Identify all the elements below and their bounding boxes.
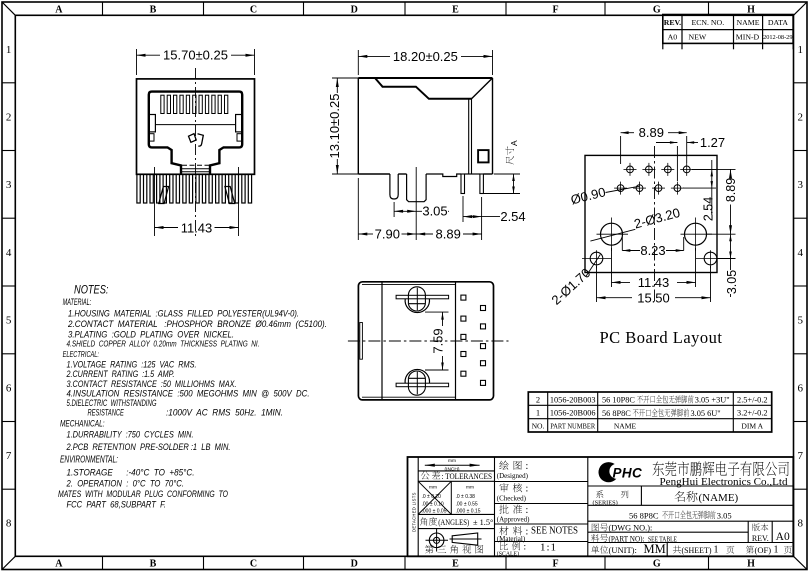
svg-text:8.89: 8.89 <box>436 226 461 241</box>
svg-text:8.89: 8.89 <box>639 125 664 140</box>
svg-text:6: 6 <box>6 382 12 394</box>
svg-text:1: 1 <box>6 44 12 56</box>
svg-text:PHC: PHC <box>613 466 643 481</box>
svg-text:(DWG NO.):: (DWG NO.): <box>609 524 653 533</box>
svg-text:± 1.5°: ± 1.5° <box>473 518 493 527</box>
svg-text:B: B <box>150 4 157 15</box>
svg-text:2.CURRENT RATING :1.5 AMP.: 2.CURRENT RATING :1.5 AMP. <box>66 369 175 379</box>
svg-text:5: 5 <box>6 315 12 327</box>
svg-text:8.23: 8.23 <box>640 243 665 258</box>
svg-text:1056-20B006: 1056-20B006 <box>550 409 596 418</box>
svg-text:PengHui Electronics Co.,Ltd: PengHui Electronics Co.,Ltd <box>660 476 789 488</box>
svg-text:2: 2 <box>797 111 803 123</box>
svg-text:DIM A: DIM A <box>741 422 763 431</box>
svg-text:NAME: NAME <box>614 422 637 431</box>
svg-text:H: H <box>747 559 755 570</box>
svg-text:3.05 6U": 3.05 6U" <box>691 409 721 418</box>
svg-text:A: A <box>55 4 63 15</box>
svg-text:2.54: 2.54 <box>500 209 525 224</box>
svg-text:2.5+/-0.2: 2.5+/-0.2 <box>737 395 768 404</box>
svg-text:2.CONTACT MATERIAL :PHOSPHO: 2.CONTACT MATERIAL :PHOSPHOR BRONZE Ø0.4… <box>67 319 327 329</box>
svg-text:4: 4 <box>6 247 12 259</box>
svg-text:F: F <box>552 4 558 15</box>
svg-text:E: E <box>452 559 459 570</box>
svg-text:ECN. NO.: ECN. NO. <box>691 18 724 27</box>
svg-text:3: 3 <box>6 179 12 191</box>
svg-text:(SCALE): (SCALE) <box>497 551 519 558</box>
svg-text:5: 5 <box>797 315 803 327</box>
svg-text:.000 ± 0.15: .000 ± 0.15 <box>456 508 481 514</box>
svg-text:(OF): (OF) <box>755 545 772 555</box>
svg-text:3.2+/-0.2: 3.2+/-0.2 <box>737 409 768 418</box>
svg-text:8.89: 8.89 <box>724 178 738 202</box>
svg-text:13.10±0.25: 13.10±0.25 <box>327 94 342 159</box>
svg-text:C: C <box>250 4 257 15</box>
svg-text:56 8P8C: 56 8P8C <box>602 409 631 418</box>
svg-text:: TOLERANCES: : TOLERANCES <box>442 472 493 481</box>
svg-text:RESISTANCE: RESISTANCE <box>88 408 124 418</box>
svg-text:3.05: 3.05 <box>422 204 447 219</box>
svg-text:F: F <box>552 559 558 570</box>
svg-text:1.DURRABILITY :750 CYCLES M: 1.DURRABILITY :750 CYCLES MIN. <box>67 430 194 440</box>
svg-text:(SERIES): (SERIES) <box>593 499 618 506</box>
svg-text::: : <box>526 484 529 495</box>
svg-text:3.PLATING :GOLD PLATING OVE: 3.PLATING :GOLD PLATING OVER NICKEL. <box>68 329 234 339</box>
svg-text:(Approved): (Approved) <box>497 516 530 524</box>
svg-text:mm: mm <box>448 459 456 464</box>
svg-text:6: 6 <box>797 382 803 394</box>
svg-text:4: 4 <box>797 247 803 259</box>
svg-text::: : <box>526 527 529 538</box>
svg-text:8: 8 <box>6 518 12 530</box>
svg-text:7: 7 <box>797 450 803 462</box>
svg-text:D: D <box>351 559 358 570</box>
svg-text:DETACHED LISTS: DETACHED LISTS <box>412 492 417 532</box>
svg-text:5.DIELECTRIC WITHSTANDING: 5.DIELECTRIC WITHSTANDING <box>67 398 157 408</box>
svg-text:ENVIRONMENTAL:: ENVIRONMENTAL: <box>60 454 118 465</box>
svg-text:(Material): (Material) <box>497 535 526 543</box>
svg-text:(SHEET): (SHEET) <box>682 545 712 555</box>
svg-text:18.20±0.25: 18.20±0.25 <box>393 49 458 64</box>
svg-text:2.PCB RETENTION PRE-SOLDER :: 2.PCB RETENTION PRE-SOLDER :1 LB MIN. <box>66 442 231 452</box>
svg-text:A: A <box>509 140 519 146</box>
svg-text:3.05: 3.05 <box>725 270 739 294</box>
svg-text:1: 1 <box>536 408 540 418</box>
svg-text:2.54: 2.54 <box>701 197 715 221</box>
svg-text:G: G <box>653 4 661 15</box>
svg-text:NO.: NO. <box>532 422 545 431</box>
svg-text:1: 1 <box>774 545 779 556</box>
svg-text:15.50: 15.50 <box>637 291 670 306</box>
svg-text:A: A <box>55 559 63 570</box>
svg-text:NEW: NEW <box>689 32 707 41</box>
svg-text:DATA: DATA <box>768 18 789 27</box>
svg-text:1.STORAGE :-40°C TO +85: 1.STORAGE :-40°C TO +85°C. <box>67 468 195 478</box>
svg-text:SEE NOTES: SEE NOTES <box>531 526 578 537</box>
svg-text:MM: MM <box>644 542 666 556</box>
svg-text:mm: mm <box>466 485 474 490</box>
svg-text::: : <box>524 543 527 553</box>
svg-text:A0: A0 <box>668 32 678 41</box>
svg-text::: : <box>526 505 529 516</box>
svg-text:3.CONTACT RESISTANCE :50 MI: 3.CONTACT RESISTANCE :50 MILLIOHMS MAX. <box>67 379 237 389</box>
svg-text:E: E <box>452 4 459 15</box>
svg-text:MECHANICAL:: MECHANICAL: <box>60 419 105 429</box>
svg-text:REV.: REV. <box>752 534 769 543</box>
svg-text:7: 7 <box>6 450 12 462</box>
svg-text:1: 1 <box>797 44 803 56</box>
svg-text:56 8P8C: 56 8P8C <box>629 510 659 520</box>
svg-text:15.70±0.25: 15.70±0.25 <box>163 48 228 63</box>
svg-text:3.05 +3U": 3.05 +3U" <box>695 396 730 405</box>
svg-text:(Checked): (Checked) <box>497 495 527 503</box>
svg-text::1000V AC RMS 50Hz. 1MIN.: :1000V AC RMS 50Hz. 1MIN. <box>166 408 283 418</box>
svg-text:MATES WITH MODULAR PLUG CO: MATES WITH MODULAR PLUG CONFORMING TO <box>58 489 228 499</box>
svg-text:(Designed): (Designed) <box>497 472 529 480</box>
svg-text:H: H <box>747 4 755 15</box>
svg-text:REV.: REV. <box>664 18 681 27</box>
svg-text:2: 2 <box>536 394 540 404</box>
svg-text::: : <box>526 461 529 472</box>
svg-text:3.05: 3.05 <box>717 510 732 520</box>
svg-text:2012-08-29: 2012-08-29 <box>763 34 792 41</box>
svg-text:4.SHIELD COPPER ALLOY 0.20m: 4.SHIELD COPPER ALLOY 0.20mm THICKNESS P… <box>67 340 260 349</box>
svg-text:1:1: 1:1 <box>540 541 557 553</box>
svg-text:1056-20B003: 1056-20B003 <box>550 395 596 404</box>
svg-text:NAME: NAME <box>737 18 760 27</box>
svg-text:8: 8 <box>797 518 803 530</box>
svg-text:.0 ± 0.20: .0 ± 0.20 <box>422 494 442 500</box>
svg-text:B: B <box>150 559 157 570</box>
svg-text:(UNIT):: (UNIT): <box>609 545 637 555</box>
svg-text:FCC PART 68,SUBPART F.: FCC PART 68,SUBPART F. <box>67 500 166 510</box>
svg-text:11.43: 11.43 <box>181 220 213 235</box>
svg-text:(ANGLES): (ANGLES) <box>438 518 469 527</box>
svg-text:7.59: 7.59 <box>431 328 446 353</box>
svg-text:MATERIAL:: MATERIAL: <box>63 297 92 307</box>
svg-text:C: C <box>250 559 257 570</box>
svg-text:.00 ± 0.10: .00 ± 0.10 <box>422 501 444 507</box>
svg-text:1: 1 <box>714 545 719 556</box>
svg-text:3: 3 <box>797 179 803 191</box>
svg-text:ELECTRICAL:: ELECTRICAL: <box>63 350 99 359</box>
svg-text:PART NUMBER: PART NUMBER <box>550 422 596 431</box>
svg-text:D: D <box>351 4 358 15</box>
svg-text:G: G <box>653 559 661 570</box>
svg-text:56 10P8C: 56 10P8C <box>602 396 635 405</box>
svg-text:1.HOUSING MATERIAL :GLASS F: 1.HOUSING MATERIAL :GLASS FILLED POLYEST… <box>68 309 299 319</box>
svg-text:PC Board Layout: PC Board Layout <box>600 328 723 347</box>
svg-text:.0 ± 0.38: .0 ± 0.38 <box>456 494 476 500</box>
svg-text:MIN-D: MIN-D <box>736 32 760 41</box>
svg-text:mm: mm <box>429 485 437 490</box>
svg-text:.000 ± 0.05: .000 ± 0.05 <box>422 508 447 514</box>
svg-text:.00 ± 0.55: .00 ± 0.55 <box>456 501 478 507</box>
svg-text:(NAME): (NAME) <box>699 492 739 504</box>
svg-text:7.90: 7.90 <box>375 226 400 241</box>
svg-text:1.27: 1.27 <box>700 135 725 150</box>
svg-text:11.43: 11.43 <box>638 275 670 290</box>
svg-text:2. OPERATION : 0°C TO 70°: 2. OPERATION : 0°C TO 70°C. <box>66 479 184 489</box>
svg-text:NOTES:: NOTES: <box>74 285 109 297</box>
svg-text:2: 2 <box>6 111 12 123</box>
svg-text:(PART NO):: (PART NO): <box>609 534 645 543</box>
svg-text:A0: A0 <box>776 531 790 543</box>
